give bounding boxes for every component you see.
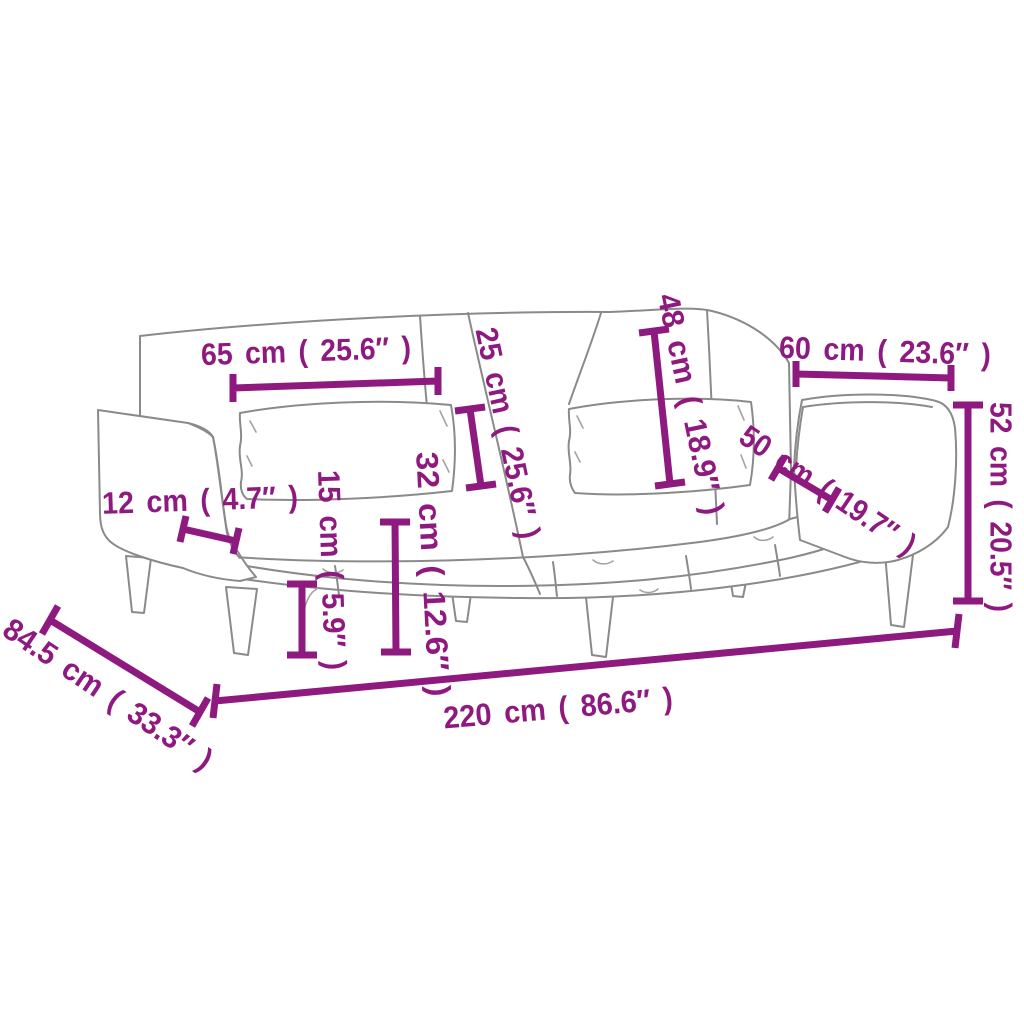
leg-front-left bbox=[226, 587, 257, 655]
leg-back-left bbox=[126, 556, 151, 613]
dim-label-220cm: 220 cm ( 86.6″ ) bbox=[442, 681, 674, 736]
dim-label-52cm: 52 cm ( 20.5″ ) bbox=[984, 402, 1019, 612]
dim-label-12cm: 12 cm ( 4.7″ ) bbox=[101, 479, 298, 521]
dim-line-15cm bbox=[287, 584, 317, 655]
dimension-60cm: 60 cm ( 23.6″ ) bbox=[778, 330, 991, 391]
dim-line-52cm bbox=[953, 405, 983, 601]
dimension-52cm: 52 cm ( 20.5″ ) bbox=[953, 402, 1019, 612]
dimension-84-5cm: 84.5 cm ( 33.3″ ) bbox=[0, 606, 219, 777]
dim-label-15cm: 15 cm ( 5.9″ ) bbox=[311, 469, 353, 670]
dim-label-65cm: 65 cm ( 25.6″ ) bbox=[200, 330, 411, 372]
dim-label-84-5cm: 84.5 cm ( 33.3″ ) bbox=[0, 611, 219, 777]
dim-label-60cm: 60 cm ( 23.6″ ) bbox=[778, 330, 991, 372]
dimension-diagram: 65 cm ( 25.6″ ) 25 cm ( 25.6″ ) 48 cm ( … bbox=[0, 0, 1024, 1024]
leg-front-right bbox=[885, 553, 913, 627]
